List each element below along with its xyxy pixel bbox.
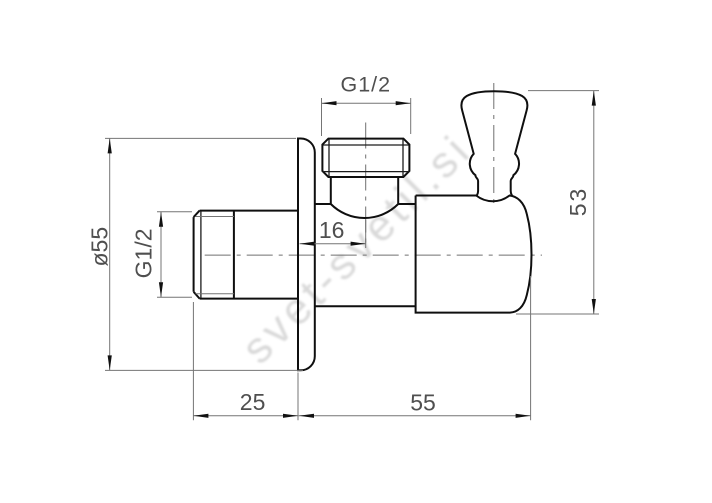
svg-text:16: 16 [319, 217, 345, 243]
svg-text:25: 25 [240, 389, 266, 415]
svg-text:55: 55 [410, 390, 436, 416]
svg-text:G1/2: G1/2 [131, 228, 157, 278]
svg-text:ø55: ø55 [87, 227, 113, 267]
svg-text:G1/2: G1/2 [340, 73, 391, 97]
svg-text:53: 53 [565, 187, 591, 217]
